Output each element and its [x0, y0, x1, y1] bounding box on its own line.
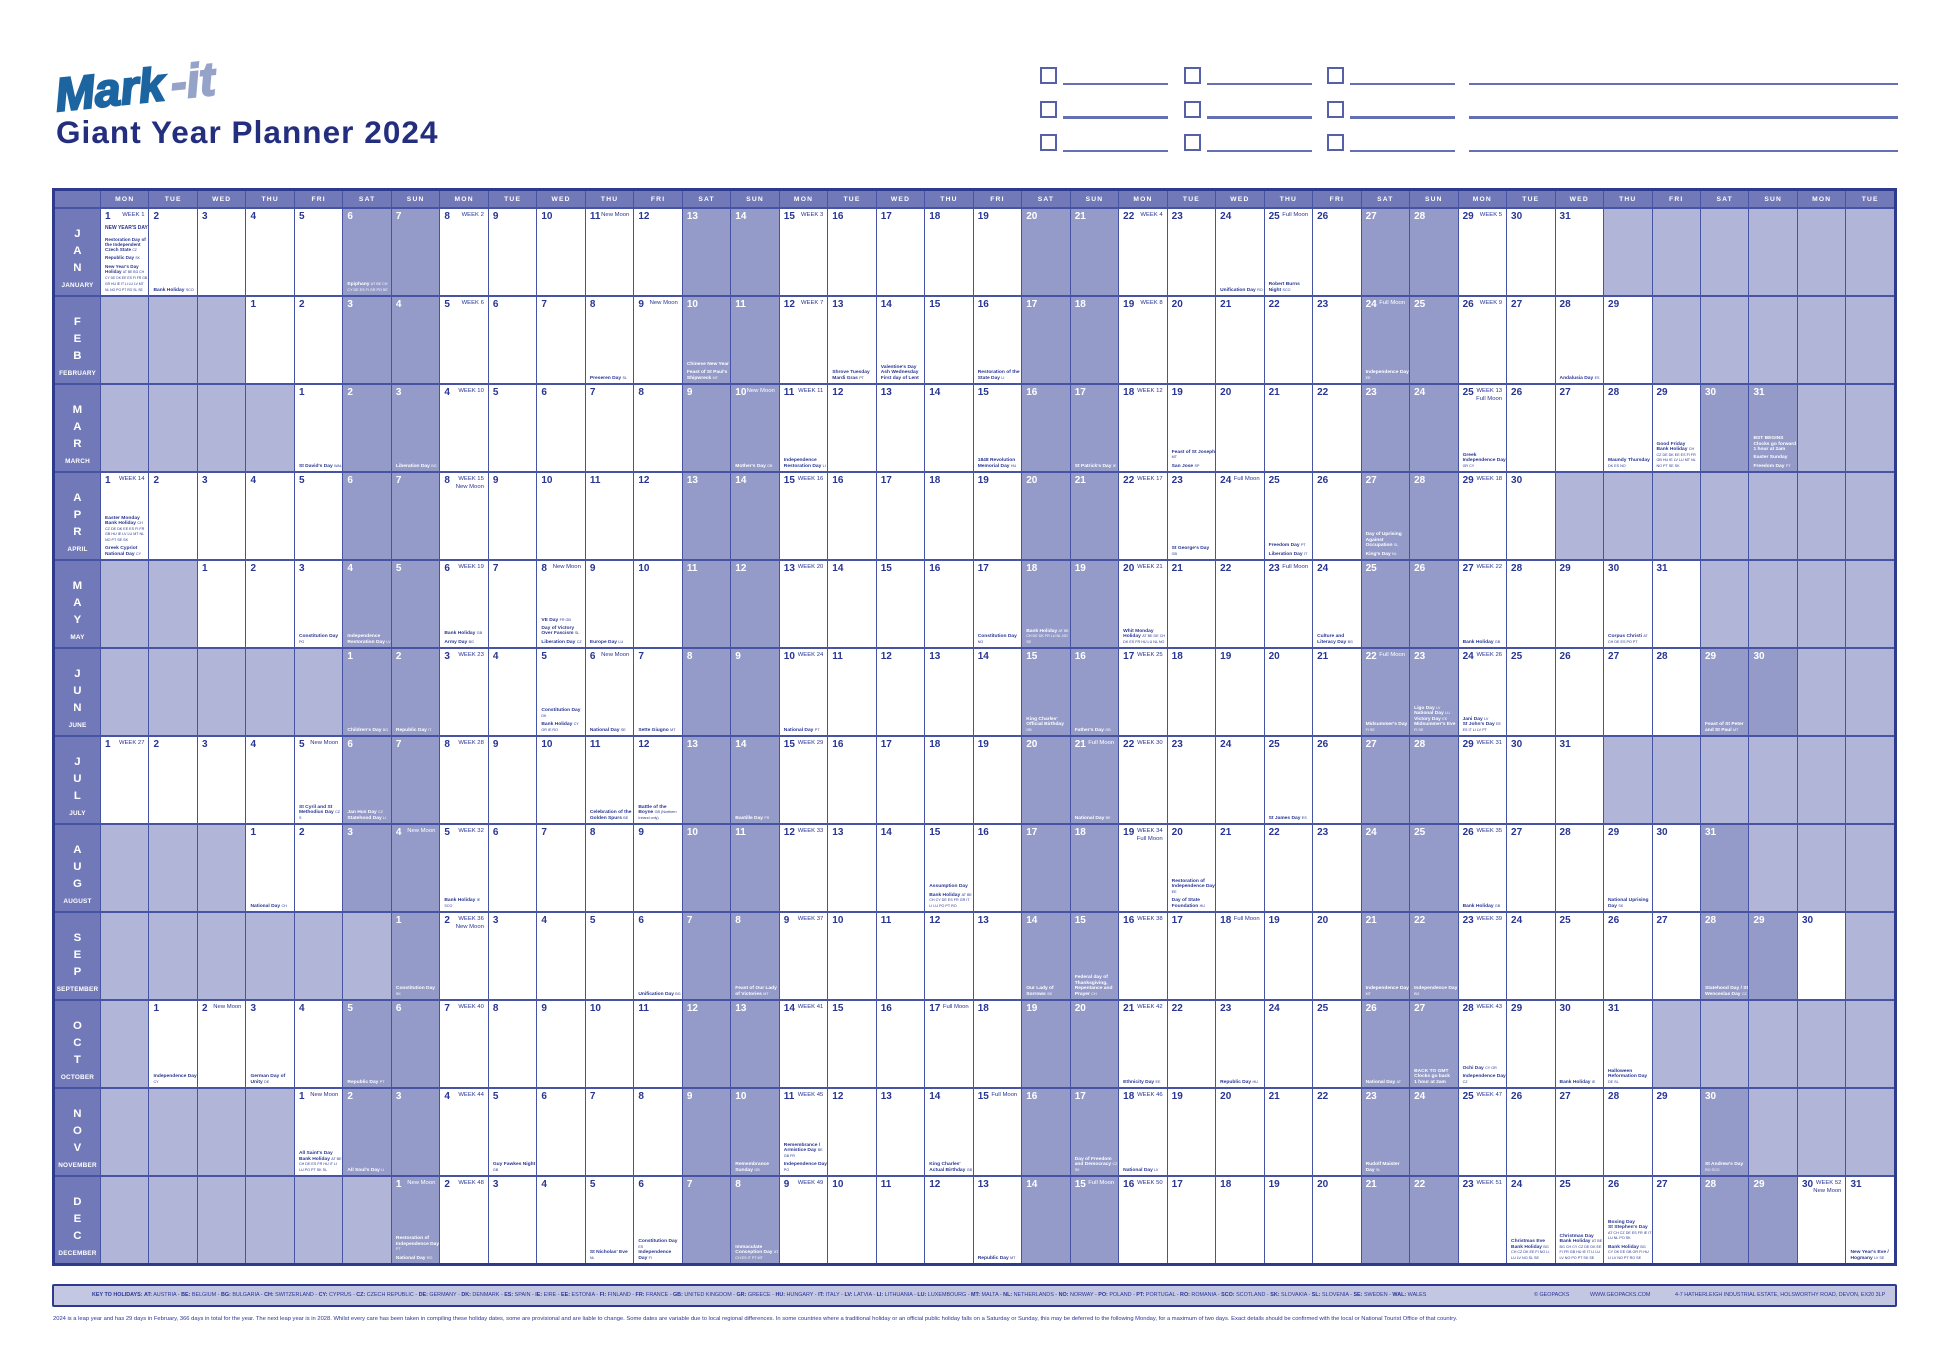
svg-text:Mark: Mark — [53, 60, 171, 121]
svg-text:-it: -it — [168, 60, 220, 109]
